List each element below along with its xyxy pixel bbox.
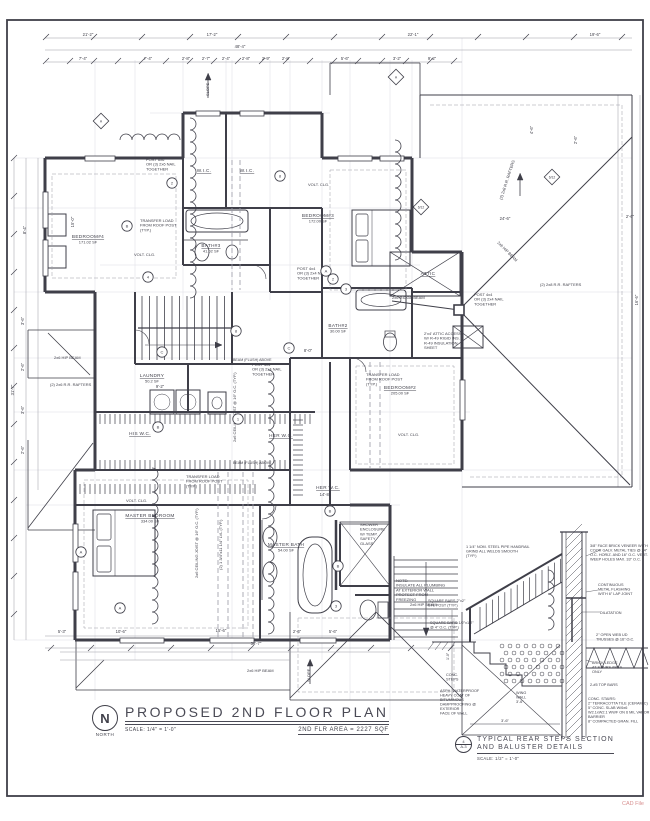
gravel-dot [532, 658, 536, 662]
detail-title-line1: TYPICAL REAR STEPS SECTION [477, 736, 614, 744]
repeat-line [523, 34, 529, 40]
plan-line [76, 660, 104, 688]
dim-text: 15'-6" [216, 628, 227, 633]
dim-text: 2'-8" [242, 56, 251, 61]
plan-line [303, 544, 327, 606]
gravel-dot [544, 679, 548, 683]
note-text: VOLT. CLG. [398, 432, 419, 437]
note-text: 1'-0" [446, 652, 450, 660]
plan-line [215, 342, 222, 348]
plan-line [212, 397, 222, 409]
tag-circle-label: B [126, 224, 129, 229]
dim-text: 36'-7" [251, 641, 262, 646]
note-text: CONC.STEPS [446, 673, 459, 681]
gravel-dot [504, 679, 508, 683]
repeat-line [427, 34, 433, 40]
plan-line [191, 213, 243, 229]
gravel-dot [556, 644, 560, 648]
dim-text: 19'-6" [590, 32, 601, 37]
plan-line [73, 524, 78, 562]
dim-text: 4'-6" [529, 125, 534, 134]
gravel-dot [556, 672, 560, 676]
plan-line [97, 546, 111, 572]
gravel-dot [512, 651, 516, 655]
floor-plan-drawing: 21'-2"17'-2"22'-1"19'-6"48'-4"7'-4"7'-4"… [0, 0, 650, 821]
dim-text: 48'-4" [235, 44, 246, 49]
plan-line [120, 638, 164, 643]
room-label-his-wc: HIS W.C. [129, 431, 151, 436]
room-label-wic-left: W.I.C. [197, 168, 212, 173]
note-text: SHOWERENCLOSUREW/ TEMP.SAFETYGLASS [360, 522, 385, 546]
detail-title-rule [477, 753, 614, 754]
repeat-line [566, 652, 582, 668]
repeat-line [571, 34, 577, 40]
tag-circle-label: B [329, 509, 332, 514]
repeat-line [43, 34, 49, 40]
blueprint-sheet: 21'-2"17'-2"22'-1"19'-6"48'-4"7'-4"7'-4"… [0, 0, 650, 821]
repeat-line [566, 668, 582, 684]
dim-text: 8'-0" [304, 348, 313, 353]
dim-text: 10'-6" [116, 629, 127, 634]
gravel-dot [548, 672, 552, 676]
plan-line [356, 214, 368, 236]
title-rule [125, 724, 389, 725]
page-title: PROPOSED 2ND FLOOR PLAN [125, 705, 389, 722]
dim-text: 31'-7" [10, 384, 15, 395]
repeat-line [187, 34, 193, 40]
repeat-line [566, 716, 582, 732]
plan-line [85, 156, 115, 161]
plan-line [392, 301, 459, 310]
repeat-line [566, 572, 582, 588]
repeat-line [619, 34, 625, 40]
repeat-line [435, 642, 441, 650]
tag-circle-label: C [161, 350, 164, 355]
note-text: 2x6 HIP BEAM [496, 240, 518, 262]
plan-line [73, 572, 78, 610]
dim-text: 22'-1" [408, 32, 419, 37]
gravel-dot [520, 665, 524, 669]
note-text: POST 4x4OR (3) 2x4 NAILTOGETHER [474, 292, 504, 306]
repeat-line [67, 58, 73, 64]
detail-title-block: 4 A-3 TYPICAL REAR STEPS SECTION AND BAL… [455, 736, 645, 761]
repeat-line [566, 676, 582, 692]
note-text: 2-#5 TOP BARS [590, 683, 618, 687]
repeat-line [566, 612, 582, 628]
gravel-dot [508, 658, 512, 662]
tag-diamond-label: 6/12 [549, 175, 556, 179]
repeat-line [428, 642, 434, 650]
gravel-dot [548, 658, 552, 662]
dim-text: 7'-4" [79, 56, 88, 61]
repeat-line [566, 636, 582, 652]
gravel-dot [552, 679, 556, 683]
repeat-line [475, 34, 481, 40]
note-text: (2) 2x6 R.R. RAFTERS [50, 382, 92, 387]
gravel-dot [508, 644, 512, 648]
room-label-attic: ATTIC [421, 271, 436, 276]
repeat-line [211, 58, 217, 64]
note-text: 2x6 CEILING JOIST @ 16" O.C. (TYP.) [232, 372, 237, 442]
plan-line [474, 582, 562, 634]
note-text: TRANSFER LOADFROM ROOF POST(TYP.) [140, 218, 177, 232]
repeat-line [566, 692, 582, 708]
room-label-master-bedroom: MASTER BEDROOM [125, 513, 174, 518]
plan-line [466, 554, 562, 610]
repeat-line [43, 58, 49, 64]
repeat-line [566, 620, 582, 636]
tag-circle-label: C [288, 346, 291, 351]
plan-line [48, 246, 66, 268]
plan-line [360, 600, 376, 620]
note-text: 2'x4' ATTIC ACCESSW/ R-49 RIGID INS.R-49… [424, 331, 462, 350]
detail-tag-bubble: 4 A-3 [455, 736, 472, 753]
note-text: DILATATION [600, 611, 622, 615]
room-label-bedroom-3: BEDROOM#3 [302, 213, 334, 218]
gravel-dot [512, 665, 516, 669]
repeat-line [379, 34, 385, 40]
tag-circle-label: B [337, 564, 340, 569]
plan-line [300, 638, 336, 643]
repeat-line [566, 644, 582, 660]
repeat-line [566, 548, 582, 564]
gravel-dot [500, 672, 504, 676]
plan-line [290, 612, 376, 698]
plan-line [458, 642, 562, 686]
note-text: CONTINUOUSMETAL FLASHINGWITH 6" LAP JOIN… [598, 583, 633, 596]
note-text: TRANSFER LOADFROM ROOF POST(TYP.) [186, 474, 223, 488]
room-area-laundry: 50.2 SF [145, 379, 160, 384]
dim-text: 2'-6" [573, 135, 578, 144]
dim-text: 5'-6" [341, 56, 350, 61]
gravel-dot [532, 672, 536, 676]
dim-text: 2'-6" [20, 445, 25, 454]
title-block: N NORTH PROPOSED 2ND FLOOR PLAN SCALE: 1… [92, 705, 389, 737]
repeat-line [566, 580, 582, 596]
plan-line [205, 73, 211, 80]
plan-line [352, 358, 366, 372]
dim-text: 24'-6" [500, 216, 511, 221]
note-text: SLOPE [306, 668, 311, 682]
tag-diamond-label: 6/12 [418, 205, 425, 209]
gravel-dot [548, 644, 552, 648]
gravel-dot [524, 658, 528, 662]
plan-line [454, 305, 464, 315]
gravel-dot [532, 644, 536, 648]
note-text: VOLT. CLG. [308, 182, 329, 187]
room-area-bath-3: 41.02 SF [203, 249, 220, 254]
note-text: SQUARE BARS 1/2"x1/2"@ 4" O.C. (TYP.) [430, 621, 474, 629]
plan-line [84, 480, 248, 628]
dim-text: 9'-2" [156, 384, 165, 389]
gravel-dot [528, 651, 532, 655]
revision-cloud [548, 570, 554, 630]
repeat-line [566, 604, 582, 620]
repeat-line [331, 34, 337, 40]
gravel-dot [504, 651, 508, 655]
detail-tag-sheet: A-3 [460, 745, 466, 749]
plan-line [240, 111, 264, 116]
plan-line [263, 562, 277, 582]
plan-line [208, 392, 226, 414]
dim-text: 2'-4" [222, 56, 231, 61]
plan-geometry [7, 20, 648, 796]
detail-scale: SCALE: 1/2" = 1'-0" [477, 756, 614, 761]
dim-text: 3'-6" [20, 405, 25, 414]
note-text: (2) 2x8 R.R. RAFTERS [498, 159, 516, 200]
plan-line [154, 394, 170, 410]
note-text: BRICK LEDGEAT STAIRS AREAONLY [592, 661, 623, 674]
plan-line [459, 310, 630, 485]
dim-text: 2'-7" [202, 56, 211, 61]
detail-title-line2: AND BALUSTER DETAILS [477, 744, 614, 752]
note-text: 2x6 RIDGE BEAM [392, 295, 425, 300]
dim-text: 15'-0" [70, 216, 75, 227]
dim-text: 2'-8" [282, 56, 291, 61]
note-text: 2x6 HIP BEAM [247, 668, 274, 673]
plan-line [356, 240, 368, 262]
note-text: VOLT. CLG. [134, 252, 155, 257]
note-text: SLOPE [205, 82, 210, 96]
gravel-dot [556, 658, 560, 662]
repeat-line [566, 556, 582, 572]
plan-line [460, 380, 465, 420]
gravel-dot [544, 665, 548, 669]
dim-text: 2'-6" [20, 362, 25, 371]
repeat-line [163, 58, 169, 64]
room-label-wic-right: W.I.C. [240, 168, 255, 173]
note-text: BEAM (FLUSH) ABOVE [233, 461, 272, 465]
room-area-bedroom-3: 172.00 SF [309, 219, 328, 224]
plan-scale: SCALE: 1/4" = 1'-0" [125, 727, 176, 733]
dim-text: 14'-8" [320, 492, 331, 497]
dim-text: 2'-6" [293, 629, 302, 634]
gravel-dot [540, 644, 544, 648]
tag-circle-label: A [119, 606, 122, 611]
north-arrow-icon: N [92, 705, 118, 731]
note-text: VOLT. CLG. [126, 498, 147, 503]
dim-text: 3'-2" [393, 56, 402, 61]
dim-text: 7'-4" [144, 56, 153, 61]
plan-line [210, 638, 254, 643]
repeat-line [566, 684, 582, 700]
plan-line [307, 659, 313, 666]
room-label-master-bath: MASTER BATH [268, 542, 304, 547]
repeat-line [566, 532, 582, 548]
plan-line [150, 390, 174, 414]
gravel-dot [524, 644, 528, 648]
tag-circle-label: B [157, 425, 160, 430]
note-text: ASPH. WATERPROOFHEAVY COAT OFBITUMINOUSD… [440, 689, 480, 715]
room-area-bath-2: 30.00 SF [330, 329, 347, 334]
room-area-bedroom-4: 171.02 SF [79, 240, 98, 245]
repeat-line [139, 34, 145, 40]
room-label-her-wc: HER W.C. [269, 433, 293, 438]
room-label-bedroom-2: BEDROOM#2 [384, 385, 416, 390]
repeat-line [283, 34, 289, 40]
plan-line [423, 628, 429, 636]
repeat-line [235, 34, 241, 40]
north-label: NORTH [92, 732, 118, 737]
dim-text: 5'-6" [329, 629, 338, 634]
gravel-dot [500, 658, 504, 662]
note-text: 2x6 HIP BEAM [54, 355, 81, 360]
plan-line [517, 173, 523, 180]
dim-text: 2'-6" [626, 214, 635, 219]
gravel-dot [500, 644, 504, 648]
room-area-master-bedroom: 334.00 SF [141, 519, 160, 524]
repeat-line [566, 700, 582, 716]
note-text: CONC. STAIRS:2" TERRACOTTA TILE (CERAMIC… [588, 697, 650, 723]
note-text: BEAM (FLUSH) ABOVE [233, 358, 272, 362]
north-arrow: N NORTH [92, 705, 118, 737]
room-area-master-bath: 54.00 SF [278, 548, 295, 553]
gravel-dot [528, 679, 532, 683]
repeat-line [566, 540, 582, 556]
tag-circle-label: A [325, 269, 328, 274]
revision-cloud [268, 370, 274, 634]
note-text: WINGWALL3'-6" [516, 691, 526, 704]
room-label-her-wc-2: HER W.C. [316, 485, 340, 490]
dim-text: 5'-3" [58, 629, 67, 634]
room-label-bath-2: BATH#2 [328, 323, 347, 328]
repeat-line [566, 708, 582, 724]
gravel-dot [512, 679, 516, 683]
repeat-line [442, 642, 448, 650]
gravel-dot [516, 658, 520, 662]
repeat-line [91, 58, 97, 64]
note-text: 3'-6" [501, 718, 510, 723]
note-text: 1 1/4" NOM. STEEL PIPE HANDRAILGRIND ALL… [466, 545, 530, 558]
plan-line [356, 290, 406, 310]
gravel-dot [528, 665, 532, 669]
plan-line [48, 214, 66, 236]
dim-text: 21'-2" [83, 32, 94, 37]
repeat-line [566, 588, 582, 604]
gravel-dot [544, 651, 548, 655]
repeat-line [307, 58, 313, 64]
plan-line [252, 265, 266, 279]
note-text: (2) 1 3/4"x11 1/4" LVL (TYP.) [218, 519, 223, 570]
watermark-text: CAD File [622, 801, 644, 807]
dim-text: 8'-4" [22, 225, 27, 234]
note-text: 2" OPEN WEB UDTRUSSES @ 16" O.C. [596, 633, 634, 641]
repeat-line [115, 58, 121, 64]
dim-text: 2'-8" [182, 56, 191, 61]
gravel-dot [516, 644, 520, 648]
repeat-line [566, 660, 582, 676]
plan-line [48, 333, 90, 375]
room-area-bedroom-2: 205.00 SF [391, 391, 410, 396]
plan-line [43, 240, 48, 276]
plan-line [43, 192, 48, 228]
repeat-line [235, 58, 241, 64]
dim-text: 17'-2" [207, 32, 218, 37]
dim-text: 16'-6" [634, 294, 639, 305]
note-text: 2x6 CEILING JOIST @ 16" O.C. (TYP.) [194, 508, 199, 578]
plan-line [196, 111, 220, 116]
room-label-bedroom-4: BEDROOM#4 [72, 234, 104, 239]
repeat-line [566, 564, 582, 580]
gravel-dot [536, 679, 540, 683]
room-label-laundry: LAUNDRY [140, 373, 165, 378]
dim-text: 3'-6" [20, 316, 25, 325]
plan-line [586, 590, 598, 592]
gravel-dot [524, 672, 528, 676]
plan-area: 2ND FLR AREA = 2227 SQF [298, 727, 388, 735]
door-window-tags: 28B234A8CB1BB3AACAA6/126/12 [76, 69, 560, 613]
dim-text: 2'-9" [262, 56, 271, 61]
revision-cloud [120, 134, 180, 140]
repeat-line [451, 58, 457, 64]
gravel-dot [536, 651, 540, 655]
gravel-dot [540, 672, 544, 676]
plan-line [97, 514, 111, 540]
note-text: SQUARE BARS 2"x2"STL POST (TYP.) [428, 599, 466, 607]
gravel-dot [552, 665, 556, 669]
dim-text: 9'-2" [428, 56, 437, 61]
tag-circle-label: A [80, 550, 83, 555]
room-label-bath-3: BATH#3 [201, 243, 220, 248]
plan-line [338, 156, 372, 161]
note-text: (2) 2x8 R.R. RAFTERS [540, 282, 582, 287]
note-text: 3/8" FACE BRICK VENEER WITHCOOR GALV. ME… [590, 544, 648, 561]
repeat-line [566, 628, 582, 644]
gravel-dot [520, 651, 524, 655]
